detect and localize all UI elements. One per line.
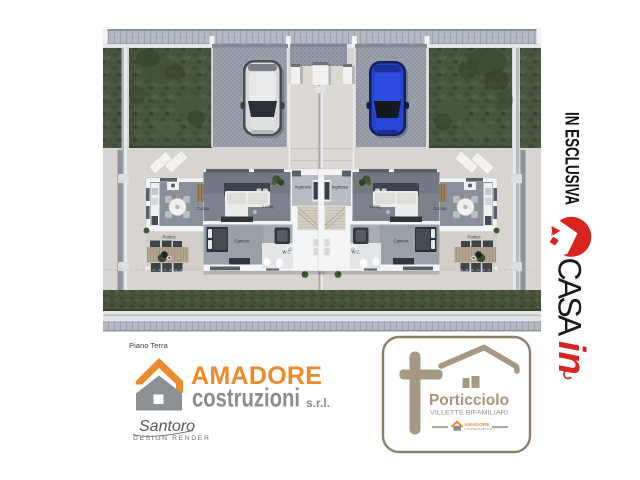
svg-text:Living: Living bbox=[263, 204, 275, 209]
svg-text:Cucina: Cucina bbox=[196, 206, 210, 211]
svg-text:Piano Terra: Piano Terra bbox=[129, 341, 168, 350]
svg-text:CASA: CASA bbox=[552, 258, 588, 337]
svg-text:DESIGN RENDER: DESIGN RENDER bbox=[133, 435, 210, 442]
svg-text:Living: Living bbox=[370, 204, 382, 209]
svg-text:Camera: Camera bbox=[394, 239, 410, 244]
svg-text:IN ESCLUSIVA: IN ESCLUSIVA bbox=[561, 112, 582, 205]
svg-text:Portico: Portico bbox=[467, 235, 481, 240]
svg-text:Santoro: Santoro bbox=[139, 418, 195, 435]
svg-text:VILLETTE BIFAMILIARI: VILLETTE BIFAMILIARI bbox=[430, 410, 508, 417]
svg-text:Ingresso: Ingresso bbox=[332, 185, 349, 190]
svg-text:W.C.: W.C. bbox=[351, 250, 360, 255]
svg-text:Porticciolo: Porticciolo bbox=[429, 392, 509, 409]
svg-text:costruzioni: costruzioni bbox=[192, 383, 300, 413]
svg-text:Cucina: Cucina bbox=[433, 206, 447, 211]
svg-text:Camera: Camera bbox=[235, 239, 251, 244]
svg-text:s.r.l.: s.r.l. bbox=[306, 396, 330, 410]
svg-text:Ingresso: Ingresso bbox=[295, 185, 312, 190]
svg-text:W.C.: W.C. bbox=[282, 250, 291, 255]
svg-text:COSTRUZIONI S.R.L.: COSTRUZIONI S.R.L. bbox=[465, 427, 496, 431]
svg-text:in: in bbox=[550, 341, 592, 375]
svg-text:Portico: Portico bbox=[162, 235, 176, 240]
